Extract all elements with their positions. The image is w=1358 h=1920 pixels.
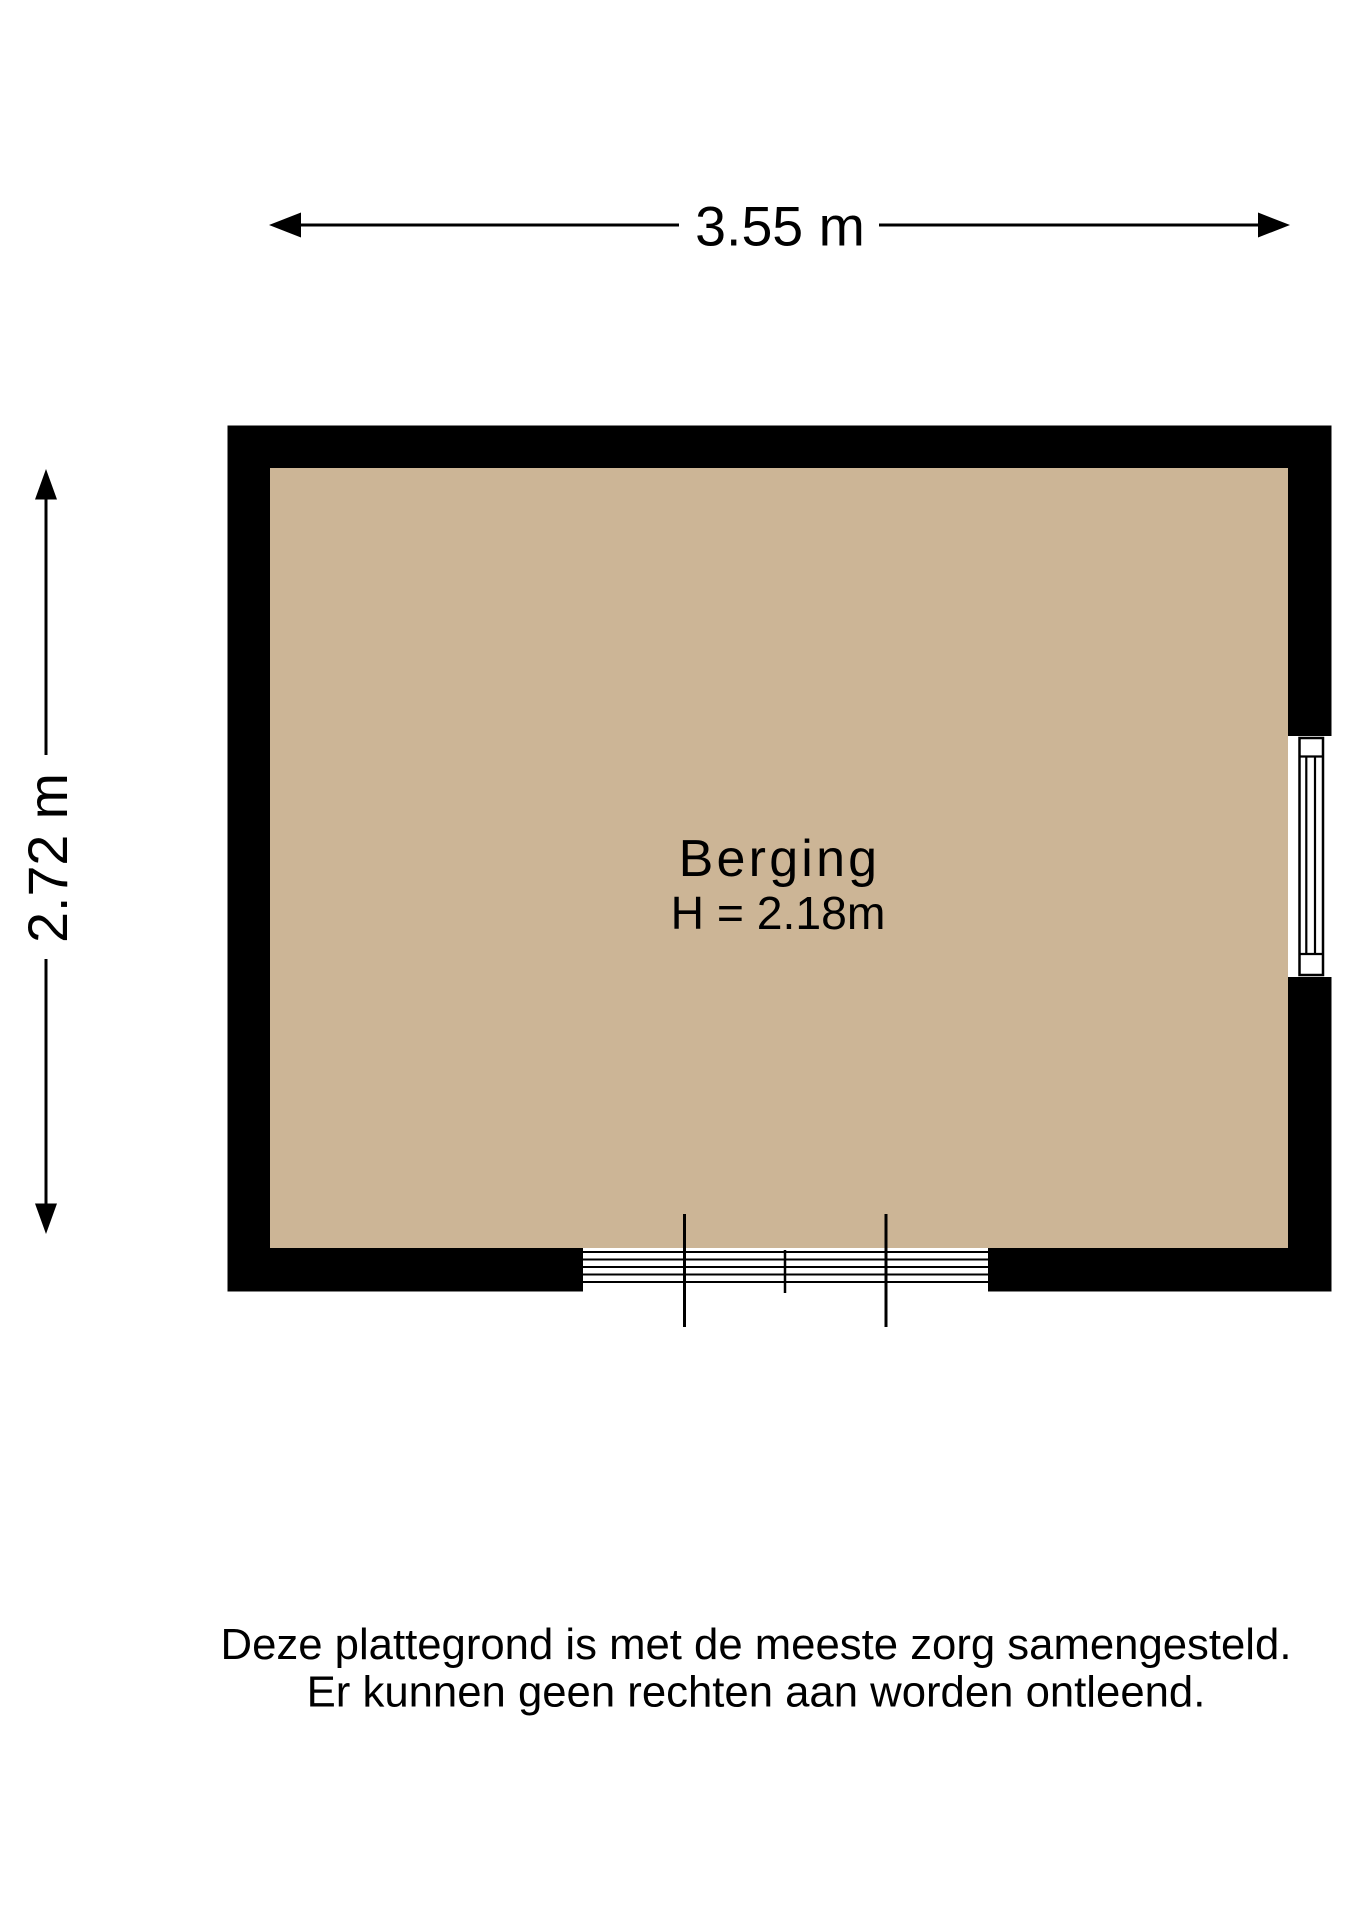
svg-text:H = 2.18m: H = 2.18m: [671, 887, 886, 939]
svg-text:Deze plattegrond is met de mee: Deze plattegrond is met de meeste zorg s…: [221, 1620, 1292, 1669]
svg-text:Er kunnen geen rechten aan wor: Er kunnen geen rechten aan worden ontlee…: [307, 1668, 1206, 1717]
svg-text:2.72 m: 2.72 m: [17, 773, 79, 943]
svg-text:Berging: Berging: [679, 830, 881, 888]
svg-text:3.55 m: 3.55 m: [695, 196, 865, 258]
